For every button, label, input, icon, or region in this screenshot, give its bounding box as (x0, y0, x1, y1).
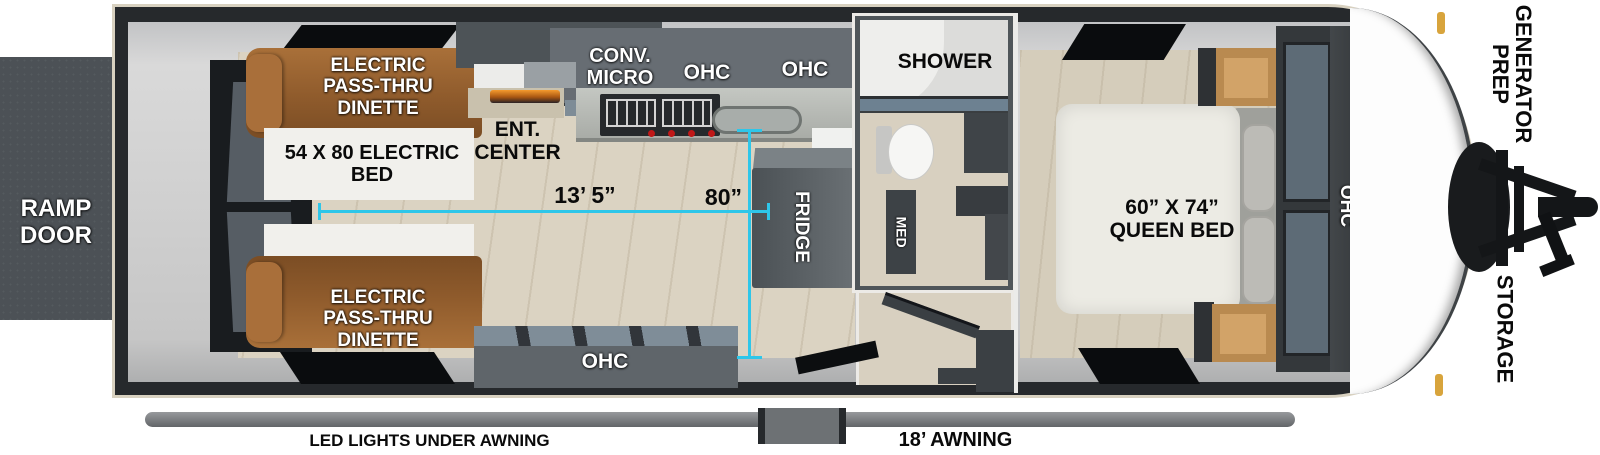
toilet (888, 124, 934, 180)
ohc-kitchen-right-label: OHC (770, 58, 840, 82)
shower-label: SHOWER (880, 51, 1010, 74)
awning-bar (145, 412, 1295, 427)
dimension-length-cap-left (318, 203, 321, 220)
nightstand-bottom-side (1194, 302, 1214, 362)
ent-center-label: ENT. CENTER (460, 119, 575, 164)
dimension-width-cap-top (737, 129, 762, 132)
cooktop-grate-right (662, 99, 712, 127)
cooktop-grate-left (606, 99, 656, 127)
fireplace (490, 90, 560, 103)
ramp-door-label: RAMP DOOR (6, 196, 106, 250)
dinette-bottom-label: ELECTRIC PASS-THRU DINETTE (303, 287, 453, 351)
hitch-crossmember-front (1496, 150, 1508, 266)
awning-label: 18’ AWNING (868, 430, 1043, 452)
lower-ohc-glass-top (474, 326, 738, 346)
hitch-crossmember-rear (1514, 166, 1524, 252)
dimension-line-length (318, 210, 770, 213)
nightstand-top-face (1224, 58, 1268, 98)
roof-vent-garage-bottom (280, 352, 455, 384)
led-lights-label: LED LIGHTS UNDER AWNING (292, 432, 567, 450)
dimension-label-width: 80” (688, 185, 742, 210)
bath-wall-segment-mid (956, 186, 1008, 216)
dimension-line-width (748, 131, 751, 359)
furnace-box (474, 64, 524, 89)
bedroom-divider (1014, 13, 1018, 393)
ramp-door (0, 57, 112, 320)
electric-bed-label: 54 X 80 ELECTRIC BED (272, 143, 472, 186)
wardrobe-glass-top (1283, 42, 1331, 202)
conv-micro-label: CONV. MICRO (565, 45, 675, 90)
burner-knobs (648, 130, 724, 137)
bath-vanity (964, 113, 1008, 173)
med-label: MED (894, 216, 909, 247)
storage-label: STORAGE (1493, 275, 1516, 383)
wardrobe-glass-bottom (1283, 210, 1331, 356)
dinette-top-label: ELECTRIC PASS-THRU DINETTE (303, 55, 453, 119)
dimension-label-length: 13’ 5” (525, 183, 645, 208)
queen-bed-label: 60” X 74” QUEEN BED (1088, 197, 1256, 242)
entry-wall-stub (938, 368, 980, 384)
floorplan-canvas: RAMP DOOR ELECTRIC PASS-THRU DINETTE 54 … (0, 0, 1600, 455)
entry-wall-corner (976, 330, 1014, 392)
dinette-top-armrest (246, 54, 282, 132)
generator-prep-label: GENERATOR PREP (1489, 0, 1535, 149)
dinette-bottom-armrest (246, 262, 282, 342)
ohc-lower-label: OHC (560, 350, 650, 374)
nightstand-bottom-face (1220, 314, 1266, 354)
clearance-light-bottom (1435, 374, 1443, 396)
bath-wall-segment-low (985, 214, 1008, 280)
clearance-light-top (1437, 12, 1445, 34)
nightstand-top-side (1198, 48, 1218, 106)
ohc-kitchen-left-label: OHC (672, 61, 742, 85)
fridge-top (753, 148, 855, 170)
shower-glass (860, 96, 1008, 113)
dimension-width-cap-bottom (737, 356, 762, 359)
fridge-label: FRIDGE (791, 191, 811, 263)
dimension-length-cap-right (767, 203, 770, 220)
entry-step (758, 408, 846, 444)
